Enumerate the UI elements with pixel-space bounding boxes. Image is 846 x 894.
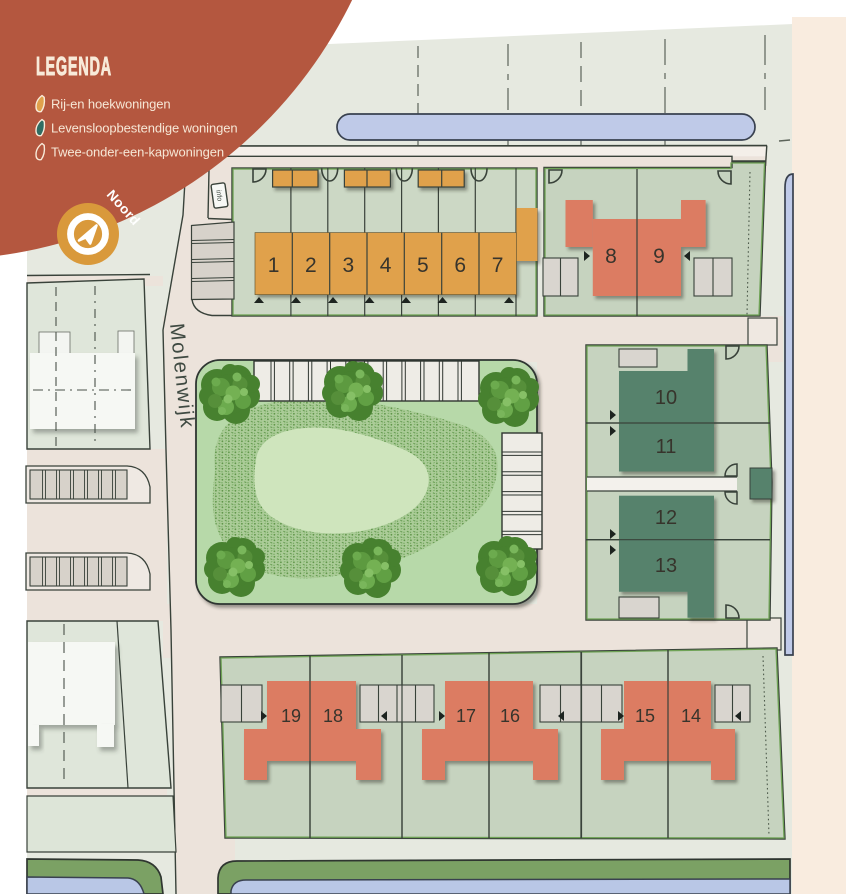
svg-text:2: 2 xyxy=(305,254,317,277)
svg-text:15: 15 xyxy=(635,706,655,726)
svg-text:12: 12 xyxy=(655,507,677,529)
svg-text:11: 11 xyxy=(656,436,677,458)
svg-text:10: 10 xyxy=(655,387,677,409)
svg-text:Levensloopbestendige woningen: Levensloopbestendige woningen xyxy=(51,121,237,136)
svg-text:3: 3 xyxy=(342,254,354,277)
svg-text:17: 17 xyxy=(456,706,476,726)
svg-text:14: 14 xyxy=(681,706,701,726)
svg-text:6: 6 xyxy=(454,254,466,277)
svg-text:1: 1 xyxy=(268,254,280,277)
svg-text:4: 4 xyxy=(380,254,392,277)
svg-text:18: 18 xyxy=(323,706,343,726)
svg-text:Rij-en hoekwoningen: Rij-en hoekwoningen xyxy=(51,97,171,112)
svg-text:8: 8 xyxy=(605,245,617,268)
svg-text:Twee-onder-een-kapwoningen: Twee-onder-een-kapwoningen xyxy=(51,145,224,160)
svg-text:5: 5 xyxy=(417,254,429,277)
svg-text:9: 9 xyxy=(653,245,665,268)
svg-text:13: 13 xyxy=(655,555,677,577)
svg-text:7: 7 xyxy=(492,254,504,277)
svg-text:16: 16 xyxy=(500,706,520,726)
svg-text:LEGENDA: LEGENDA xyxy=(36,53,112,81)
svg-text:19: 19 xyxy=(281,706,301,726)
